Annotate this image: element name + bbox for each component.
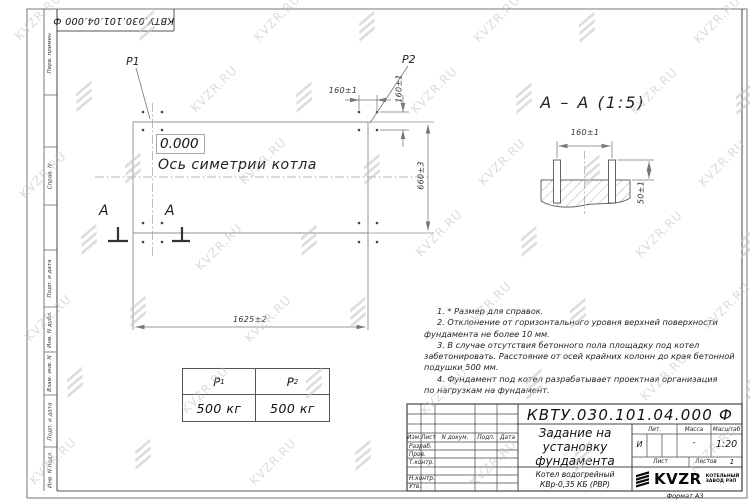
- drawing-linework: [0, 0, 750, 500]
- section-block: [541, 151, 630, 214]
- technical-notes: 1. * Размер для справок. 2. Отклонение о…: [424, 306, 742, 396]
- margin-strip-podp-data-1: Подп. и дата: [44, 250, 57, 307]
- margin-strip-vzam-inv: Взам. инв. N: [44, 352, 57, 395]
- section-cut-marks: [108, 227, 190, 241]
- title-block-title-line: фундамента: [518, 454, 632, 468]
- title-block-product-line: КВр-0,35 КБ (РВР): [518, 480, 632, 490]
- title-block-row-nkontr: Н.контр.: [409, 476, 435, 483]
- title-block-scale-label: Масштаб: [711, 427, 742, 434]
- note-line: по нагрузкам на фундамент.: [424, 385, 742, 396]
- margin-strip-label: Взам. инв. N: [44, 352, 57, 395]
- margin-strip-label: Инв. N подл.: [44, 447, 57, 491]
- note-line: забетонировать. Расстояние от осей крайн…: [424, 351, 742, 362]
- axis-of-symmetry-label: Ось симетрии котла: [158, 157, 317, 173]
- title-block-title-line: Задание на: [518, 426, 632, 440]
- margin-strip-label: Инв. N дубл.: [44, 307, 57, 352]
- margin-strip-label: Подп. и дата: [44, 250, 57, 307]
- title-block-title-line: установку: [518, 440, 632, 454]
- title-block-lit-label: Лит.: [632, 427, 677, 434]
- company-logo: KVZR КОТЕЛЬНЫЙ ЗАВОД РЭП: [634, 468, 740, 490]
- load-table-header-main: P: [213, 375, 220, 389]
- load-table-header-main: P: [287, 375, 294, 389]
- kvzr-logo-icon: [634, 471, 652, 488]
- note-line: 2. Отклонение от горизонтального уровня …: [424, 317, 742, 328]
- title-block-col-ndokum: N докум.: [435, 435, 475, 442]
- margin-strip-sprav-n: Справ. N: [44, 147, 57, 205]
- plan-width-dim-label: 1625±2: [210, 315, 290, 324]
- section-bolt-spacing-label: 160±1: [560, 128, 610, 137]
- title-block-col-podp: Подп.: [475, 435, 497, 442]
- margin-strip-label: Справ. N: [44, 147, 57, 205]
- margin-strip-podp-data-2: Подп. и дата: [44, 395, 57, 447]
- company-subtitle: КОТЕЛЬНЫЙ ЗАВОД РЭП: [706, 474, 740, 485]
- load-table-header-p2: P2: [256, 369, 329, 395]
- load-point-leaders: [136, 66, 408, 123]
- title-block-col-data: Дата: [497, 435, 518, 442]
- sheet-frame: [27, 9, 747, 498]
- title-block-row-razrab: Разраб.: [409, 444, 432, 451]
- level-mark: 0.000: [156, 134, 205, 154]
- p1-load-label: P1: [126, 55, 140, 68]
- margin-strip-inv-dubl: Инв. N дубл.: [44, 307, 57, 352]
- corner-doc-number: КВТУ.030.101.04.000 Ф: [57, 9, 174, 31]
- title-block-mass-value: -: [677, 438, 711, 448]
- note-line: 1. * Размер для справок.: [424, 306, 742, 317]
- note-line: подушки 500 мм.: [424, 362, 742, 373]
- title-block-row-tkontr: Т.контр.: [409, 460, 434, 467]
- title-block-row-utv: Утв.: [409, 484, 421, 491]
- title-block-product-line: Котел водогрейный: [518, 470, 632, 480]
- plan-bolt-spacing-h-label: 160±1: [326, 86, 360, 95]
- title-block-scale-value: 1:20: [711, 439, 742, 450]
- load-table-header-p1: P1: [183, 369, 256, 395]
- title-block-sheets-value: 1: [725, 458, 739, 466]
- margin-strip-label: Подп. и дата: [44, 395, 57, 447]
- margin-strip-inv-podl: Инв. N подл.: [44, 447, 57, 491]
- load-table-value-p1: 500 кг: [183, 395, 256, 421]
- title-block-doc-number: КВТУ.030.101.04.000 Ф: [518, 406, 742, 424]
- section-view-title: А – А (1:5): [538, 93, 648, 112]
- note-line: 3. В случае отсутствия бетонного пола пл…: [424, 340, 742, 351]
- p2-load-label: P2: [402, 53, 416, 66]
- company-name: KVZR: [654, 470, 702, 488]
- title-block-lit-value: И: [632, 440, 647, 449]
- plan-bolt-spacing-v-label: 160±1: [395, 69, 404, 109]
- drawing-sheet: Перв. примен. Справ. N Подп. и дата Инв.…: [0, 0, 750, 500]
- section-bolt-height-label: 50±1: [637, 173, 646, 213]
- section-letter-left: А: [99, 203, 109, 219]
- note-line: 4. Фундамент под котел разрабатывает про…: [424, 374, 742, 385]
- corner-doc-number-box: КВТУ.030.101.04.000 Ф: [57, 9, 174, 31]
- load-table: P1 P2 500 кг 500 кг: [182, 368, 330, 422]
- load-table-value-p2: 500 кг: [256, 395, 329, 421]
- plan-height-dim-label: 660±3: [417, 156, 426, 196]
- title-block-sheets-label: Листов: [691, 459, 721, 466]
- title-block-sheet-label: Лист: [632, 459, 689, 466]
- load-table-header-sub: 2: [294, 378, 298, 386]
- title-block-col-izm: Изм.: [407, 435, 421, 442]
- title-block-row-prov: Пров.: [409, 452, 426, 459]
- section-letter-right: А: [165, 203, 175, 219]
- title-block-col-list: Лист: [421, 435, 435, 442]
- format-label: Формат А3: [630, 492, 740, 500]
- anchor-bolt-left: [554, 160, 561, 203]
- anchor-bolt-right: [609, 160, 616, 203]
- note-line: фундамента не более 10 мм.: [424, 329, 742, 340]
- title-block-mass-label: Масса: [677, 427, 711, 434]
- load-table-header-sub: 1: [220, 378, 224, 386]
- company-subtitle-line2: ЗАВОД РЭП: [706, 479, 740, 484]
